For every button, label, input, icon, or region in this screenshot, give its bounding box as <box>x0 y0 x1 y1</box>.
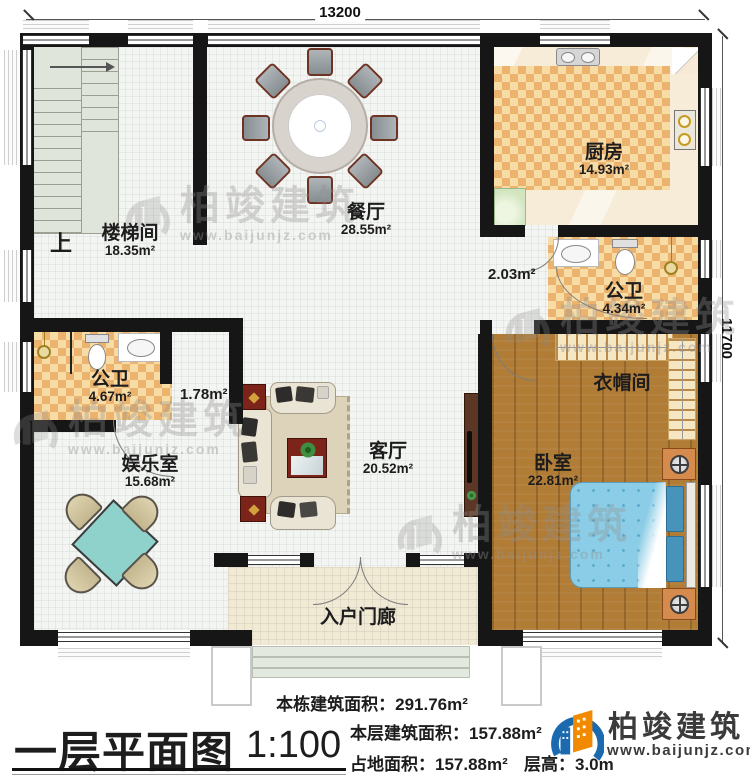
wall-bath-left-bottom <box>20 420 116 432</box>
kitchen-cabinet <box>494 188 526 226</box>
sink-icon <box>561 245 591 263</box>
bathroom-counter <box>118 333 164 362</box>
bathroom-counter <box>553 239 599 267</box>
dimension-height: 11700 <box>718 314 735 363</box>
wall-bath-right-bottom-1 <box>480 320 492 334</box>
window <box>208 35 480 45</box>
window <box>700 334 710 382</box>
title-underline-thin <box>12 774 346 775</box>
window-sill <box>4 342 20 392</box>
dimension-width: 13200 <box>315 4 365 21</box>
nightstand-knob-icon <box>670 595 689 614</box>
dimension-tick <box>718 28 729 39</box>
window <box>700 88 710 166</box>
plant-icon <box>299 441 317 459</box>
side-table <box>240 496 266 522</box>
wall-stair-dining <box>193 33 207 245</box>
nightstand <box>662 588 696 620</box>
wall-living-bottom-2 <box>300 553 314 567</box>
sofa-pillow <box>241 417 258 437</box>
porch-column-base <box>211 646 252 706</box>
shower-icon <box>37 345 51 359</box>
dimension-tick <box>718 637 729 648</box>
window-sill <box>58 648 190 660</box>
window-sill <box>4 250 20 302</box>
sink-basin <box>561 52 575 63</box>
window-sill <box>208 20 480 32</box>
toilet-icon <box>85 334 109 343</box>
window-sill <box>4 50 20 165</box>
floor-plan: 柏竣建筑www.baijunjz.com 柏竣建筑www.baijunjz.co… <box>0 0 750 782</box>
stove-burner-icon <box>678 115 691 128</box>
porch-step <box>252 668 470 678</box>
stove-burner-icon <box>678 133 691 146</box>
window <box>22 342 32 392</box>
star-icon <box>248 392 259 403</box>
stairs-up-label: 上 <box>50 226 72 258</box>
toilet-icon <box>612 239 638 248</box>
plant-icon <box>466 490 477 501</box>
land-area-text: 占地面积：157.88m² <box>350 750 508 775</box>
dining-chair <box>370 115 398 141</box>
kitchen-sink <box>556 48 600 66</box>
wall-bottom-2 <box>190 630 252 646</box>
wall-bottom-1 <box>20 630 58 646</box>
company-website: www.baijunjz.com <box>607 742 750 759</box>
company-logo-icon <box>546 702 604 774</box>
wall-dining-kitchen <box>480 33 494 237</box>
room-label-kitchen: 厨房 14.93m² <box>579 143 629 178</box>
nightstand-knob-icon <box>670 455 689 474</box>
porch-step <box>252 657 470 668</box>
sofa-pillow <box>317 386 329 399</box>
side-table <box>240 384 266 410</box>
wall-corridor-left <box>229 318 243 424</box>
room-label-bath-right: 公卫 4.34m² <box>603 282 646 317</box>
bed-headboard <box>686 482 696 588</box>
wall-living-bottom-4 <box>464 553 490 567</box>
dining-chair <box>307 48 333 76</box>
window <box>22 50 32 165</box>
toilet-bowl <box>88 344 106 370</box>
sink-icon <box>127 339 155 357</box>
scale-text: 1:100 <box>246 724 341 767</box>
sofa-pillow <box>277 501 296 518</box>
wall-living-bottom-1 <box>214 553 248 567</box>
stair-divider <box>81 47 82 233</box>
sofa-pillow <box>243 466 257 484</box>
room-label-entertainment: 娱乐室 15.68m² <box>121 455 178 490</box>
wall-bottom-4 <box>662 630 712 646</box>
porch-step <box>252 646 470 657</box>
dining-chair <box>307 176 333 204</box>
window <box>540 35 610 45</box>
room-label-porch: 入户门廊 <box>320 608 396 627</box>
wall-stairwell-bottom <box>20 318 243 332</box>
bed-pillow <box>666 536 684 582</box>
stair-treads-left <box>34 88 82 233</box>
coffee-table <box>287 438 327 478</box>
tv-cabinet <box>464 393 479 517</box>
window-sill <box>523 648 662 660</box>
stair-direction-line <box>50 66 108 68</box>
shower-cord <box>671 237 672 263</box>
room-label-cloakroom: 衣帽间 <box>593 374 650 393</box>
window-sill <box>540 20 610 32</box>
wall-living-bottom-3 <box>406 553 420 567</box>
room-label-stairwell: 楼梯间 18.35m² <box>101 224 158 259</box>
rack-rail <box>556 347 672 348</box>
dimension-line-top <box>26 19 705 20</box>
staircase <box>34 47 119 234</box>
window <box>420 555 464 565</box>
sink-basin <box>581 52 595 63</box>
area-label-hall-left: 1.78m² <box>180 386 228 403</box>
room-label-living: 客厅 20.52m² <box>363 442 413 477</box>
window <box>58 632 190 644</box>
dining-table <box>272 78 368 174</box>
clothes-rack <box>668 338 696 440</box>
tv-icon <box>467 431 472 483</box>
window-sill <box>23 20 89 32</box>
title-underline <box>12 768 346 771</box>
window <box>248 555 300 565</box>
bed-pillow <box>666 486 684 532</box>
shower-icon <box>664 261 678 275</box>
star-icon <box>248 504 259 515</box>
rack-rail <box>682 339 683 439</box>
stair-arrow-icon <box>106 62 115 72</box>
company-logo: 柏竣建筑 www.baijunjz.com <box>546 700 746 780</box>
window <box>700 485 710 587</box>
wall-bath-left-right <box>160 332 172 384</box>
room-label-dining: 餐厅 28.55m² <box>341 203 391 238</box>
kitchen-corner-counter <box>672 48 698 74</box>
sofa-pillow <box>299 501 317 518</box>
window <box>700 240 710 278</box>
window <box>23 35 89 45</box>
wall-bath-right-bottom-2 <box>534 320 712 334</box>
nightstand <box>662 448 696 480</box>
window-sill <box>128 20 193 32</box>
wall-kitchen-bottom-2 <box>558 225 712 237</box>
kitchen-stove <box>674 110 696 150</box>
sofa-pillow <box>275 386 293 403</box>
floor-area-text: 本层建筑面积：157.88m² <box>350 719 542 744</box>
room-label-bath-left: 公卫 4.67m² <box>89 370 132 405</box>
sofa-pillow <box>241 441 258 462</box>
window <box>22 250 32 302</box>
bed-sheet <box>638 482 666 588</box>
area-label-hall-right: 2.03m² <box>488 266 536 283</box>
dining-chair <box>242 115 270 141</box>
clothes-rack <box>555 333 673 361</box>
window <box>523 632 662 644</box>
building-area-text: 本栋建筑面积：291.76m² <box>252 690 492 715</box>
bath-partition <box>70 332 72 374</box>
sofa-pillow <box>295 386 314 403</box>
company-name: 柏竣建筑 <box>608 702 744 746</box>
window <box>128 35 193 45</box>
room-label-bedroom: 卧室 22.81m² <box>528 454 578 489</box>
wall-bedroom-left <box>478 334 492 646</box>
dining-table-center <box>314 120 326 132</box>
wall-kitchen-bottom-1 <box>480 225 525 237</box>
porch-column-base <box>501 646 542 706</box>
